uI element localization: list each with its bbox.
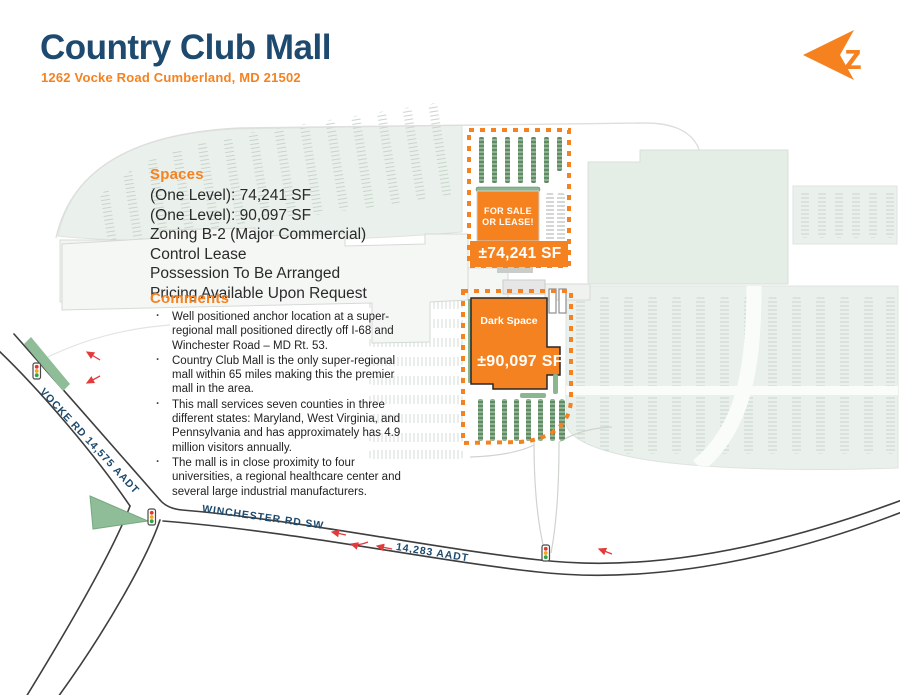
site-plan-map xyxy=(0,0,900,695)
flyer-page: Country Club Mall 1262 Vocke Road Cumber… xyxy=(0,0,900,695)
comment-bullet: Country Club Mall is the only super-regi… xyxy=(150,354,402,397)
comment-bullet: Well positioned anchor location at a sup… xyxy=(150,310,402,353)
comment-bullet: This mall services seven counties in thr… xyxy=(150,398,402,455)
page-title: Country Club Mall xyxy=(40,28,331,68)
comments-heading: Comments xyxy=(150,290,402,307)
parking-field-far-right xyxy=(793,186,897,244)
spaces-line: Zoning B-2 (Major Commercial) xyxy=(150,225,440,245)
logo-letter: z xyxy=(844,36,862,78)
traffic-light-icon xyxy=(148,509,156,525)
comment-bullet: The mall is in close proximity to four u… xyxy=(150,456,402,499)
property-address: 1262 Vocke Road Cumberland, MD 21502 xyxy=(41,70,301,85)
spaces-section: Spaces (One Level): 74,241 SF (One Level… xyxy=(150,166,440,303)
spaces-line: Possession To Be Arranged xyxy=(150,264,440,284)
company-logo: z xyxy=(800,28,880,84)
spaces-heading: Spaces xyxy=(150,166,440,183)
for-sale-size: ±74,241 SF xyxy=(472,245,568,263)
dark-space-size: ±90,097 SF xyxy=(474,353,566,371)
building-dark-space xyxy=(471,298,560,389)
for-sale-label: FOR SALE OR LEASE! xyxy=(477,206,539,228)
parking-field-bottom-right xyxy=(566,286,898,470)
arrow-left-logo-icon xyxy=(800,28,880,84)
traffic-light-icon xyxy=(33,363,41,379)
dark-space-label: Dark Space xyxy=(478,315,540,328)
spaces-line: Control Lease xyxy=(150,245,440,265)
comments-section: Comments Well positioned anchor location… xyxy=(150,290,402,500)
spaces-line: (One Level): 90,097 SF xyxy=(150,206,440,226)
traffic-light-icon xyxy=(542,545,550,561)
spaces-line: (One Level): 74,241 SF xyxy=(150,186,440,206)
